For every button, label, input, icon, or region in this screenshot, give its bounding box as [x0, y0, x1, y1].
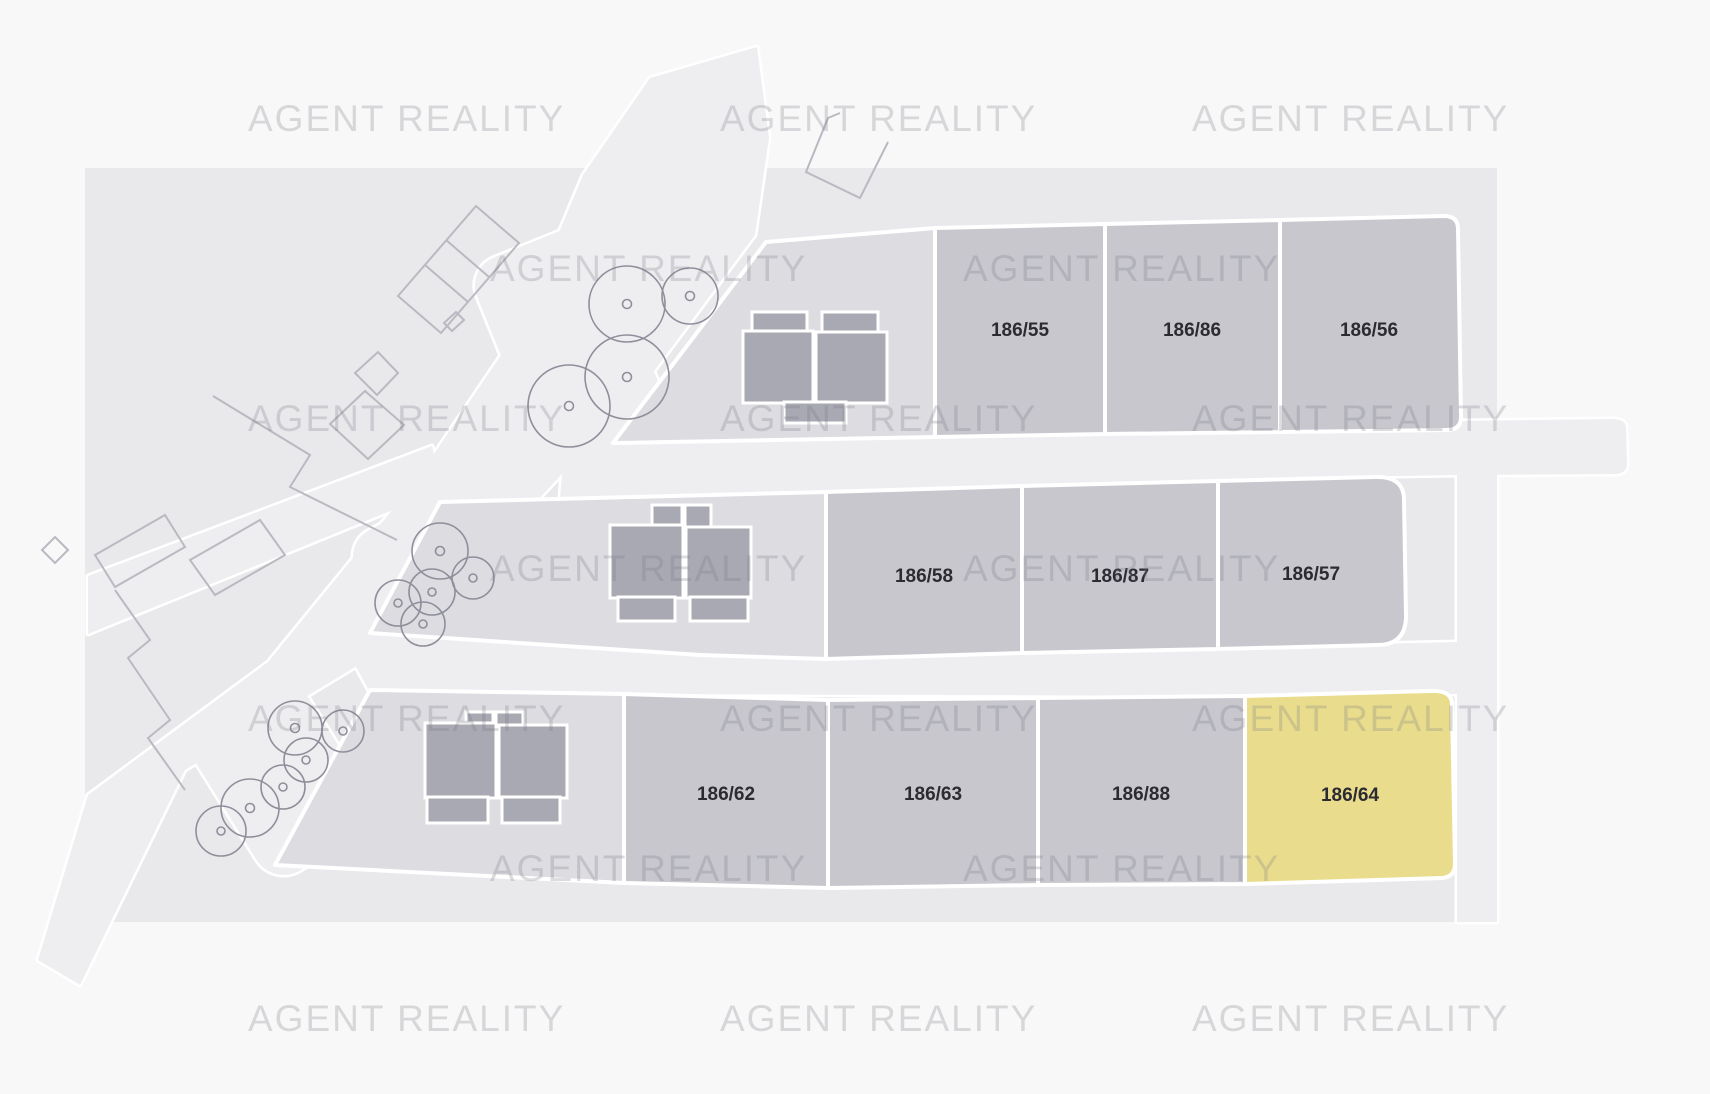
watermark-text: AGENT REALITY [1192, 98, 1509, 139]
watermark-text: AGENT REALITY [248, 98, 565, 139]
watermark-text: AGENT REALITY [490, 548, 807, 589]
watermark-text: AGENT REALITY [1192, 398, 1509, 439]
parcel-label-186-57: 186/57 [1282, 564, 1340, 585]
watermark-text: AGENT REALITY [720, 398, 1037, 439]
parcel-label-186-62: 186/62 [697, 784, 755, 805]
parcel-label-186-86: 186/86 [1163, 320, 1221, 341]
watermark-text: AGENT REALITY [720, 698, 1037, 739]
parcel-label-186-56: 186/56 [1340, 320, 1398, 341]
watermark-text: AGENT REALITY [720, 998, 1037, 1039]
parcel-label-186-88: 186/88 [1112, 784, 1170, 805]
parcel-label-186-64: 186/64 [1321, 785, 1380, 806]
watermark-text: AGENT REALITY [963, 548, 1280, 589]
watermark-text: AGENT REALITY [720, 98, 1037, 139]
watermark-text: AGENT REALITY [248, 998, 565, 1039]
watermark-text: AGENT REALITY [963, 248, 1280, 289]
watermark-text: AGENT REALITY [248, 398, 565, 439]
site-plan-page: 186/55 186/86 186/56 186/58 186/87 186/5… [0, 0, 1710, 1094]
watermark-text: AGENT REALITY [963, 848, 1280, 889]
watermark-text: AGENT REALITY [490, 848, 807, 889]
site-plan-map: 186/55 186/86 186/56 186/58 186/87 186/5… [0, 0, 1710, 1094]
parcel-label-186-55: 186/55 [991, 320, 1050, 341]
watermark-text: AGENT REALITY [248, 698, 565, 739]
parcel-label-186-58: 186/58 [895, 566, 953, 587]
watermark-text: AGENT REALITY [1192, 998, 1509, 1039]
parcel-label-186-63: 186/63 [904, 784, 962, 805]
watermark-text: AGENT REALITY [1192, 698, 1509, 739]
watermark-text: AGENT REALITY [490, 248, 807, 289]
